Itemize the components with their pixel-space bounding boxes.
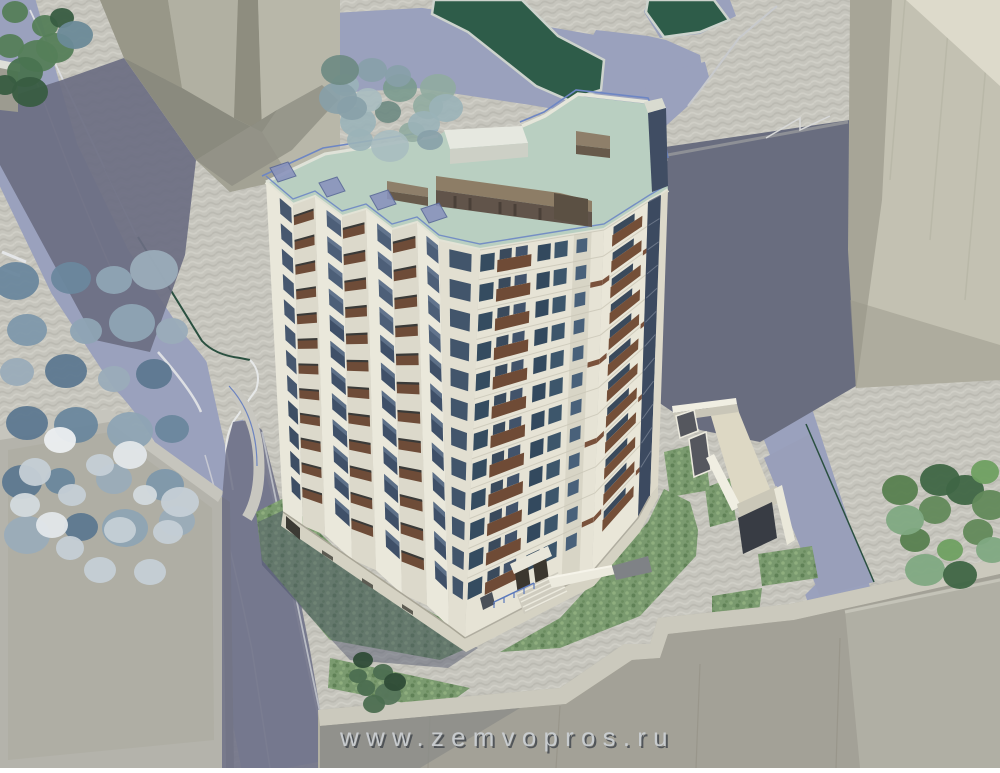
svg-text:www.zemvopros.ru: www.zemvopros.ru [339, 722, 675, 752]
